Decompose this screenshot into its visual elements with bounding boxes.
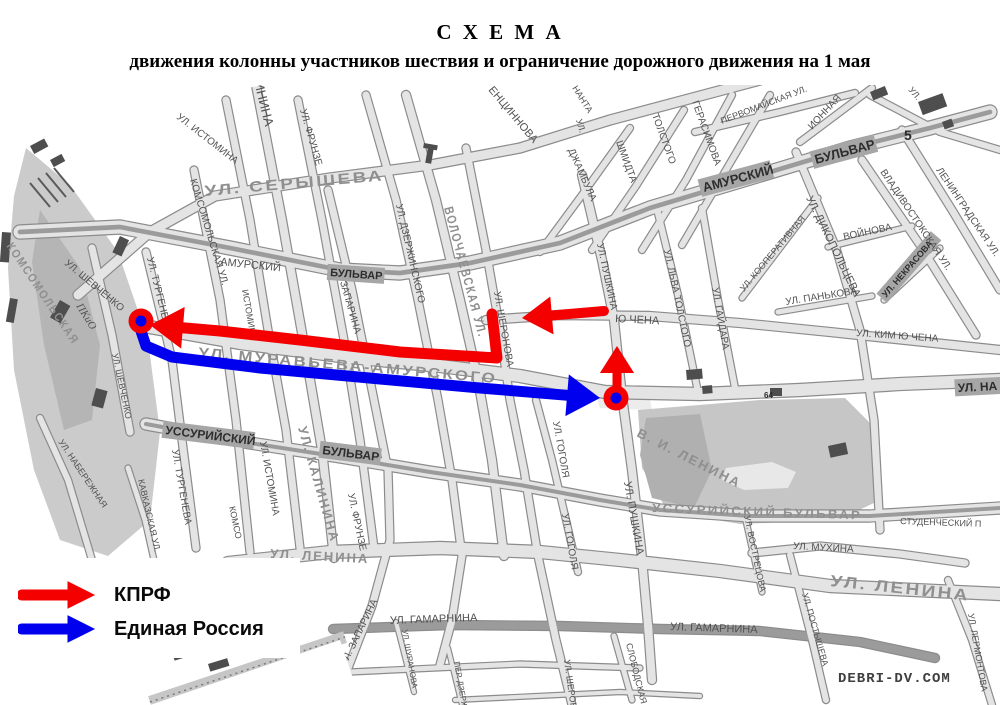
street-label: Ю ЧЕНА — [615, 313, 660, 327]
route-endpoint-marker-center — [136, 316, 147, 327]
street-label: УЛ. ДЗЕРЖИНСКОГО — [393, 203, 427, 304]
legend-item-kprf: КПРФ — [18, 580, 171, 610]
route-endpoint-marker-center — [611, 393, 622, 404]
street-label-group: УЛ. НА — [954, 377, 1000, 397]
street-label: УЛ. КООПЕРАТИВНАЯ — [738, 214, 807, 294]
street-label-group: ШМИДТА — [613, 139, 638, 184]
route-arrowhead-red — [600, 346, 634, 373]
street-label: ЕНЦИННОВА — [486, 84, 541, 146]
route-arrowhead-red — [522, 297, 554, 335]
street-label: УЛ. ГОГОЛЯ — [559, 513, 580, 571]
street-label-group: Ю ЧЕНА — [615, 313, 660, 327]
page-title: С Х Е М А — [0, 20, 1000, 45]
street-label: УЛ. МУХИНА — [793, 541, 854, 555]
page-subtitle: движения колонны участников шествия и ог… — [0, 51, 1000, 73]
building — [918, 93, 947, 115]
street-label-group: УЛ. КООПЕРАТИВНАЯ — [738, 214, 807, 294]
street-label-group: УССУРИЙСКИЙ — [162, 421, 257, 449]
street-label: 5 — [904, 127, 912, 143]
street-label-group: УЛ. ЛЕРМОНТОВА — [966, 613, 990, 692]
street-label-group: УЛ. СЕРЫШЕВА — [204, 167, 385, 200]
street-label-group: УЛ. ПУШКИНА — [594, 242, 619, 311]
er-route-arrow-icon — [18, 615, 98, 643]
street-label: ШМИДТА — [613, 139, 638, 184]
street-label: АМУРСКИЙ — [701, 162, 775, 195]
street-label-group: 64 — [764, 391, 773, 400]
street-label-group: УЛ. — [906, 85, 923, 102]
street-label: УЛ. ЛЕРМОНТОВА — [966, 613, 990, 692]
street-label: 64 — [764, 391, 773, 400]
building — [702, 385, 713, 394]
street-label-group: УЛ. ЛЬВА ТОЛСТОГО — [661, 248, 693, 348]
street-label: УЛ. ЛЬВА ТОЛСТОГО — [661, 248, 693, 348]
schema-page: УЛ. СЕРЫШЕВАКАЛИНИНАУЛ. ИСТОМИНАУЛ. ФРУН… — [0, 0, 1000, 705]
building — [686, 369, 703, 380]
map-legend: КПРФ Единая Россия — [0, 558, 300, 658]
map-mask — [0, 658, 148, 705]
street-label-group: 5 — [904, 127, 912, 143]
street-label-group: УЛ. МУХИНА — [793, 541, 854, 555]
kprf-route-arrow-icon — [18, 581, 98, 609]
page-header: С Х Е М А движения колонны участников ше… — [0, 0, 1000, 85]
legend-item-er: Единая Россия — [18, 614, 264, 644]
route-red — [550, 311, 604, 316]
street-label: УЛ. ПУШКИНА — [594, 242, 619, 311]
building — [30, 138, 48, 153]
street-label-group: АМУРСКИЙ — [698, 160, 776, 197]
street-label-group: УЛ. ДЗЕРЖИНСКОГО — [393, 203, 427, 304]
building — [50, 154, 65, 167]
watermark: DEBRI-DV.COM — [838, 671, 951, 687]
legend-label-kprf: КПРФ — [114, 584, 171, 607]
street — [20, 112, 990, 273]
street-label: НАНТА — [570, 84, 594, 115]
street-label-group: УЛ. ДИКОПОЛЬЦЕВА — [803, 194, 863, 299]
street-label-group: ЛЕНИНГРАДСКАЯ УЛ. — [934, 166, 1000, 259]
street-label: УЛ. НЕКРАСОВА — [880, 238, 935, 299]
legend-label-er: Единая Россия — [114, 618, 264, 641]
street-label-group: НАНТА — [570, 84, 594, 115]
street-label: УЛ. НА — [957, 379, 997, 395]
street-label: СТУДЕНЧЕСКИЙ П — [900, 515, 982, 529]
building — [208, 658, 229, 671]
street-label: УЛ. — [906, 85, 923, 102]
street-label-group: СТУДЕНЧЕСКИЙ П — [900, 515, 982, 529]
street-label: ЛЕНИНГРАДСКАЯ УЛ. — [934, 166, 1000, 259]
street-label-group: ЕНЦИННОВА — [486, 84, 541, 146]
street-label-group: УЛ. ГОГОЛЯ — [559, 513, 580, 571]
street-label: УЛ. ДИКОПОЛЬЦЕВА — [803, 194, 863, 299]
street-label: УЛ. СЕРЫШЕВА — [204, 167, 385, 200]
